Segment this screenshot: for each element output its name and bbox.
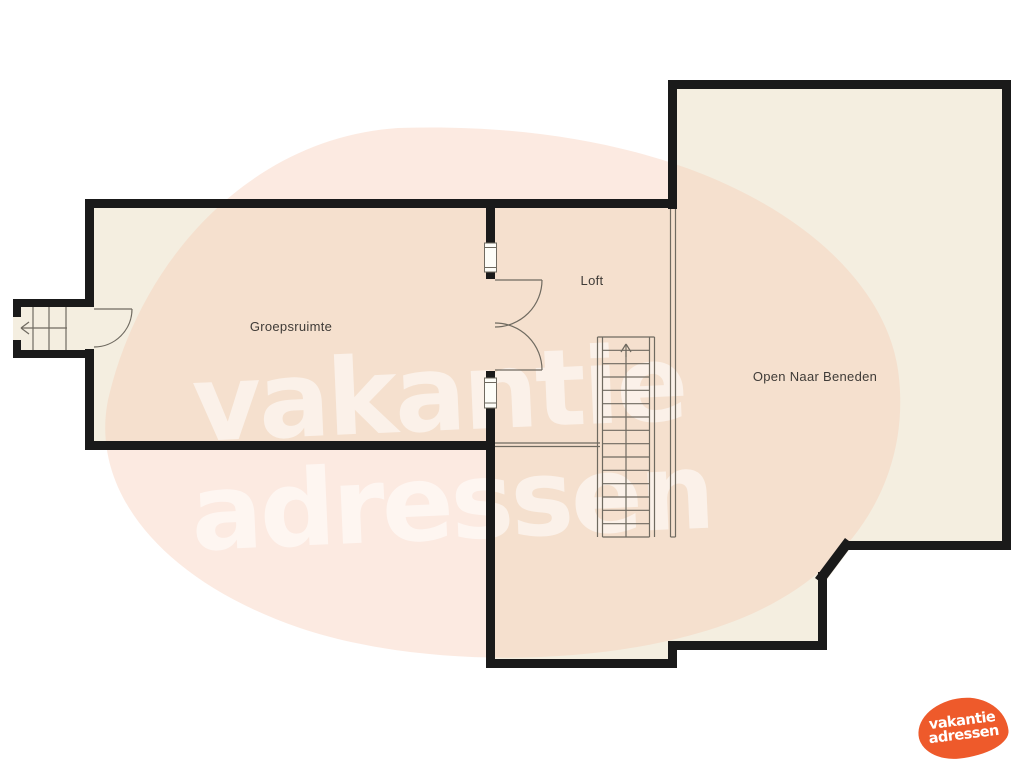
wall-top: [85, 199, 677, 208]
wall-porch-top: [13, 299, 93, 307]
wall-rightroom-bottom: [845, 541, 1011, 550]
wall-middle-seg3: [486, 371, 495, 378]
brand-logo-text: vakantie adressen: [912, 690, 1013, 768]
floorplan-drawing: vakantie adressen: [0, 0, 1024, 768]
wall-bottom-lower: [486, 659, 677, 668]
watermark-line2: adressen: [189, 430, 715, 576]
wall-left-upper: [85, 199, 94, 307]
label-open-naar-beneden: Open Naar Beneden: [753, 369, 877, 384]
wall-lower-right: [818, 572, 827, 650]
wall-left-lower: [85, 349, 94, 450]
wall-rightroom-right: [1002, 80, 1011, 550]
wall-porch-bottom: [13, 350, 93, 358]
wall-groepsruimte-bottom: [85, 441, 494, 450]
floorplan-canvas: vakantie adressen: [0, 0, 1024, 768]
wall-porch-bottom-cap: [13, 340, 21, 358]
wall-loft-bottom-right: [668, 641, 827, 650]
wall-porch-top-cap: [13, 299, 21, 317]
wall-rightroom-top: [668, 80, 1011, 89]
wall-middle-seg4: [486, 408, 495, 668]
wall-middle-seg2: [486, 272, 495, 279]
label-groepsruimte: Groepsruimte: [250, 319, 332, 334]
label-loft: Loft: [581, 273, 604, 288]
wall-rightroom-left: [668, 80, 677, 209]
wall-middle-seg1: [486, 208, 495, 243]
brand-logo: vakantie adressen: [916, 695, 1010, 762]
